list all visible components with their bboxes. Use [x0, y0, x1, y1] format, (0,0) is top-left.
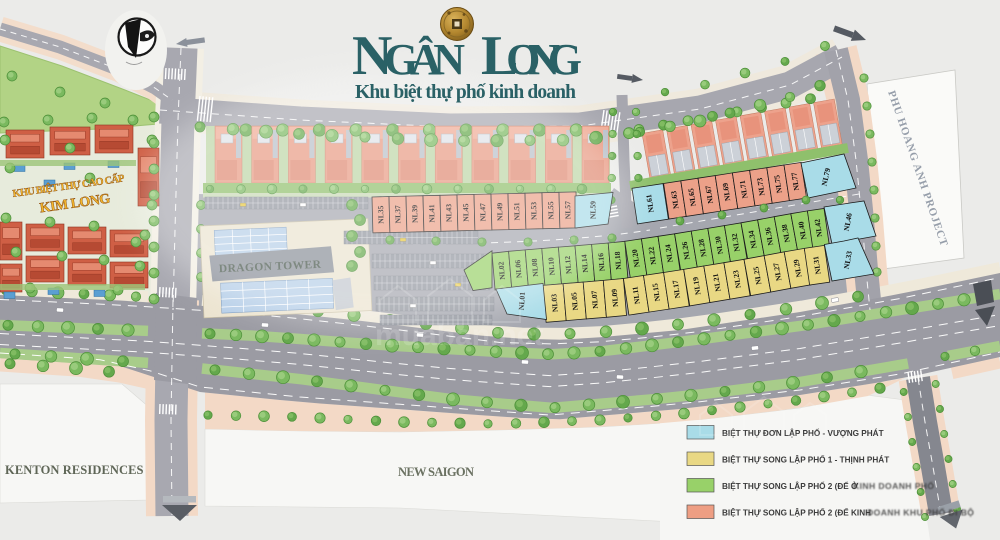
svg-text:muaban.net: muaban.net — [375, 319, 543, 352]
svg-text:NL05: NL05 — [569, 292, 580, 311]
svg-text:BIỆT THỰ SONG LẬP PHỐ 2 (ĐỂ KI: BIỆT THỰ SONG LẬP PHỐ 2 (ĐỂ KINH — [722, 506, 871, 517]
svg-text:NL07: NL07 — [589, 290, 600, 309]
svg-text:NEW SAIGON: NEW SAIGON — [398, 465, 476, 479]
svg-text:Khu biệt thự phố kinh doanh: Khu biệt thự phố kinh doanh — [355, 82, 576, 103]
svg-text:NGÂN: NGÂN — [352, 25, 465, 87]
svg-text:BIỆT THỰ SONG LẬP PHỐ 1 - THỊN: BIỆT THỰ SONG LẬP PHỐ 1 - THỊNH PHÁT — [722, 453, 889, 464]
svg-text:KENTON RESIDENCES: KENTON RESIDENCES — [5, 463, 145, 477]
svg-text:LONG: LONG — [481, 25, 582, 87]
svg-text:KINH DOANH PHỐ: KINH DOANH PHỐ — [853, 480, 935, 491]
svg-text:BIỆT THỰ SONG LẬP PHỐ 2 (ĐỂ Ở: BIỆT THỰ SONG LẬP PHỐ 2 (ĐỂ Ở — [722, 480, 858, 491]
svg-text:NL03: NL03 — [549, 293, 560, 312]
svg-text:NL18: NL18 — [613, 251, 624, 270]
svg-text:DOANH KHU PHỐ ĐI BỘ: DOANH KHU PHỐ ĐI BỘ — [867, 506, 974, 517]
svg-text:NL09: NL09 — [610, 288, 621, 307]
